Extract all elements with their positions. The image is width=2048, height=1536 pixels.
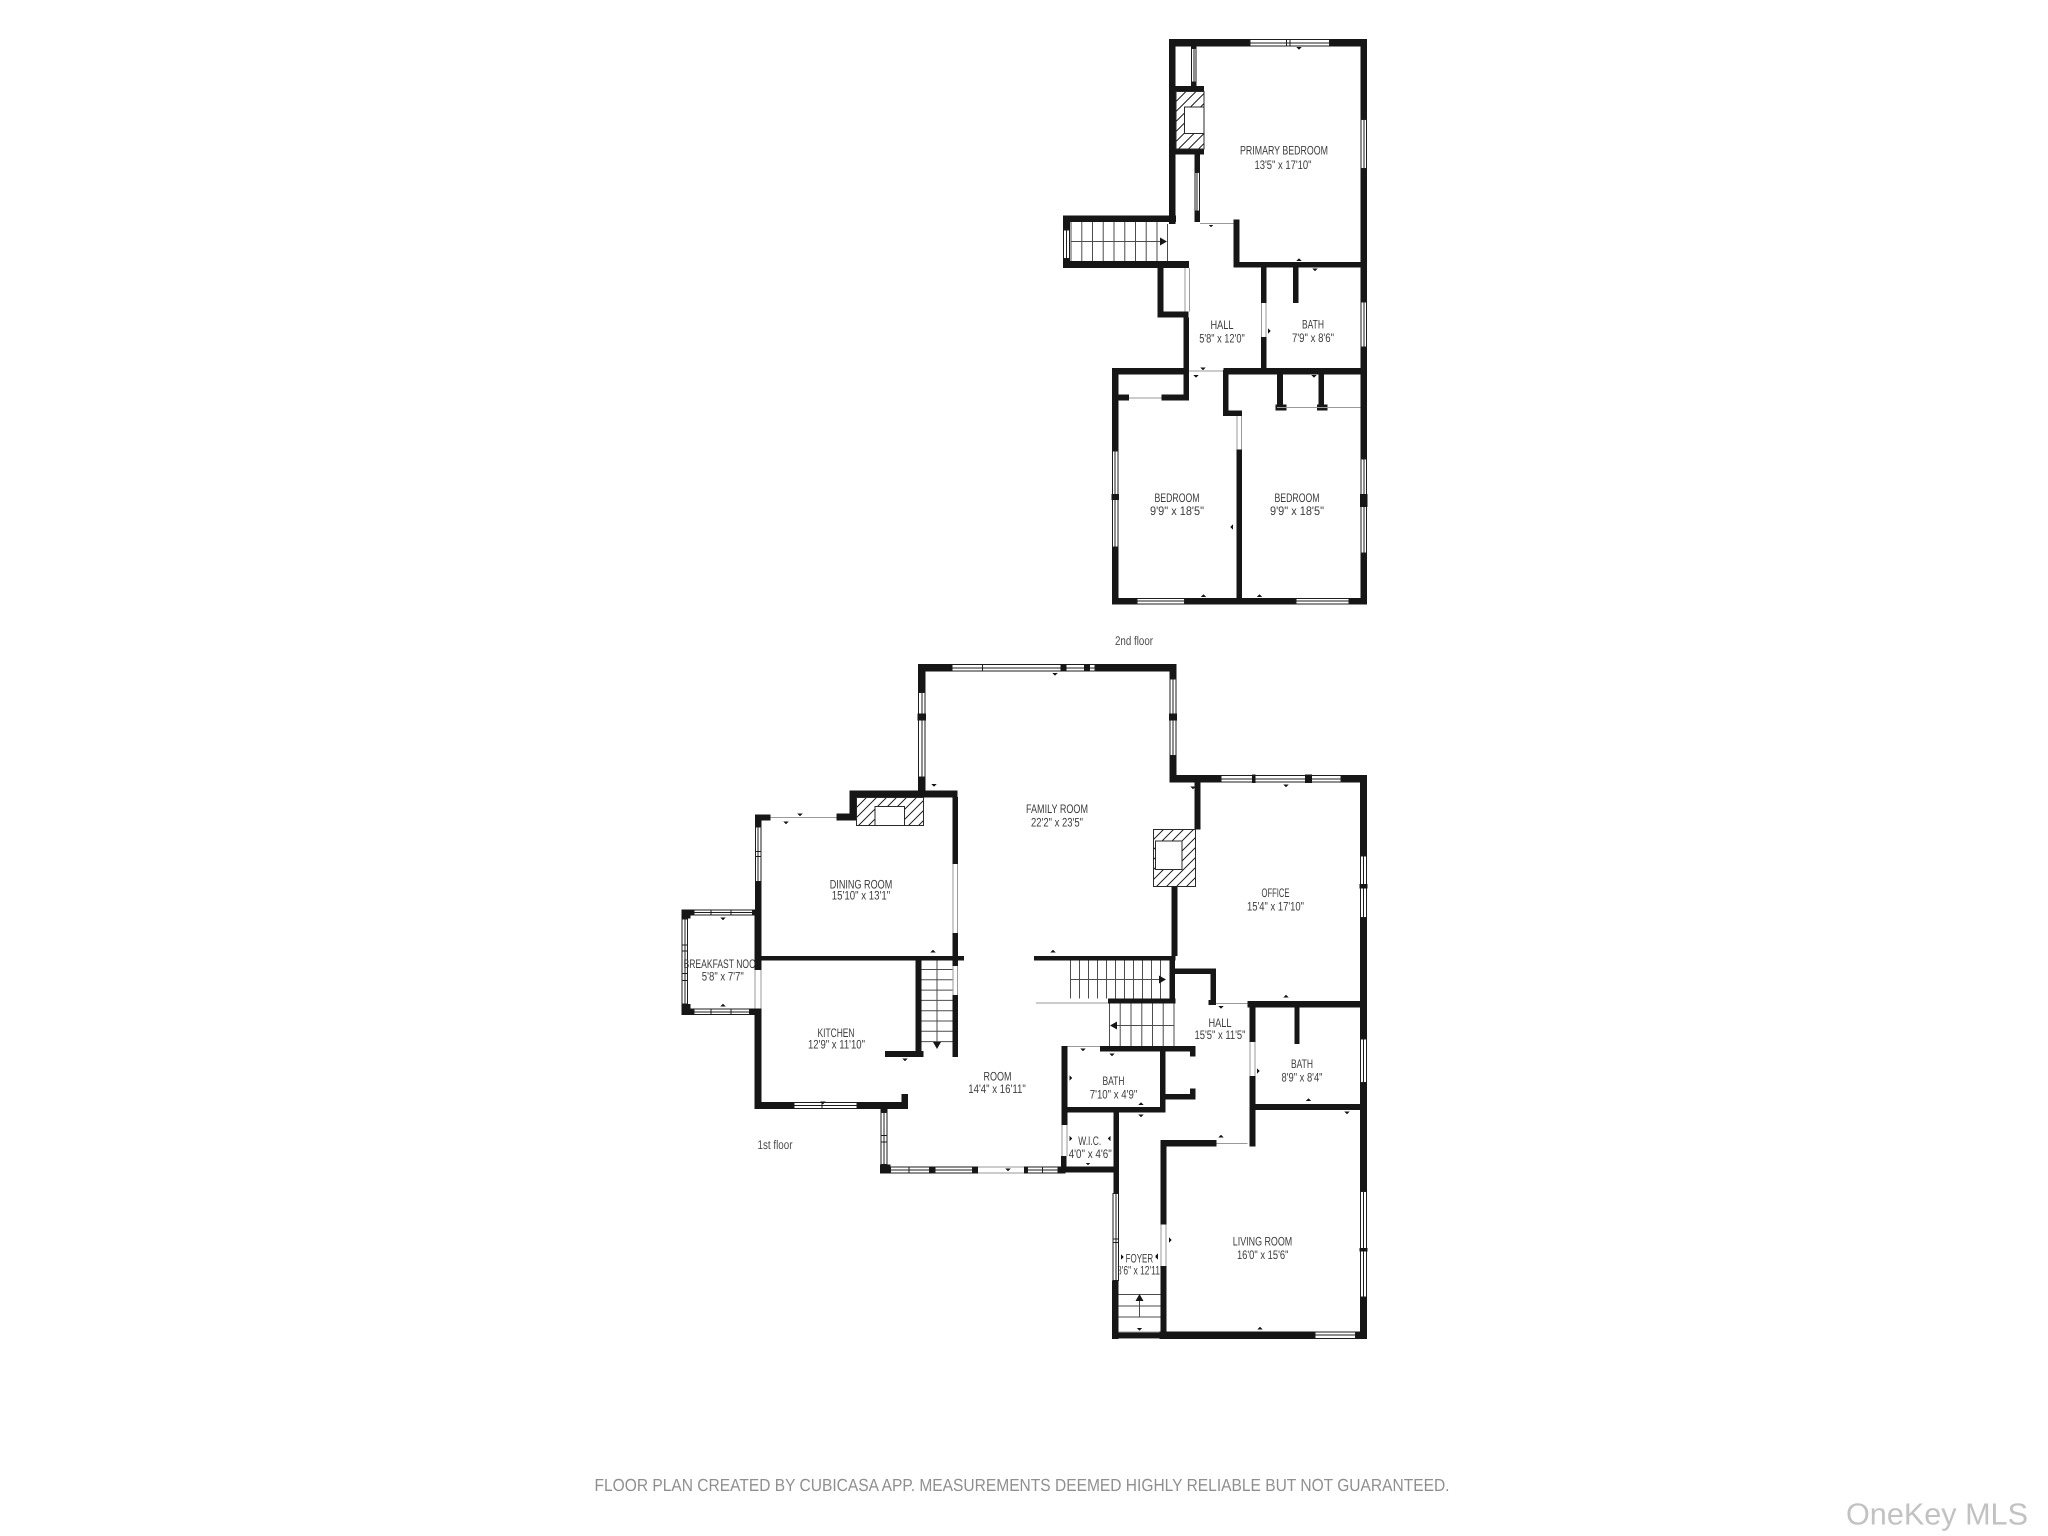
svg-text:1st floor: 1st floor [758, 1138, 793, 1152]
svg-text:5'8" x 7'7": 5'8" x 7'7" [702, 969, 744, 983]
svg-text:FLOOR PLAN CREATED BY CUBICASA: FLOOR PLAN CREATED BY CUBICASA APP. MEAS… [595, 1475, 1450, 1495]
svg-text:5'8" x 12'0": 5'8" x 12'0" [1199, 332, 1245, 346]
svg-text:OFFICE: OFFICE [1262, 886, 1290, 900]
svg-text:2nd floor: 2nd floor [1115, 634, 1153, 648]
svg-text:8'9" x 8'4": 8'9" x 8'4" [1282, 1071, 1323, 1085]
svg-text:9'9" x 18'5": 9'9" x 18'5" [1270, 504, 1324, 518]
svg-text:BEDROOM: BEDROOM [1275, 491, 1320, 505]
svg-text:15'10" x 13'1": 15'10" x 13'1" [832, 889, 891, 903]
svg-text:16'0" x 15'6": 16'0" x 15'6" [1237, 1248, 1289, 1262]
svg-text:14'4" x 16'11": 14'4" x 16'11" [968, 1082, 1026, 1096]
svg-text:LIVING ROOM: LIVING ROOM [1233, 1235, 1293, 1249]
svg-text:W.I.C.: W.I.C. [1078, 1134, 1101, 1148]
svg-text:13'5" x 17'10": 13'5" x 17'10" [1255, 158, 1312, 172]
svg-text:22'2" x 23'5": 22'2" x 23'5" [1031, 816, 1083, 830]
svg-text:12'9" x 11'10": 12'9" x 11'10" [808, 1038, 865, 1052]
svg-text:4'0" x 4'6": 4'0" x 4'6" [1069, 1147, 1112, 1161]
svg-text:HALL: HALL [1211, 318, 1234, 332]
svg-text:BATH: BATH [1291, 1057, 1313, 1071]
svg-text:3'6" x 12'11": 3'6" x 12'11" [1117, 1264, 1163, 1278]
svg-text:FAMILY ROOM: FAMILY ROOM [1026, 802, 1088, 816]
svg-text:BATH: BATH [1302, 318, 1324, 332]
svg-text:7'9" x 8'6": 7'9" x 8'6" [1292, 331, 1334, 345]
svg-text:15'5" x 11'5": 15'5" x 11'5" [1195, 1028, 1246, 1042]
svg-text:BATH: BATH [1103, 1074, 1125, 1088]
svg-text:9'9" x 18'5": 9'9" x 18'5" [1150, 504, 1204, 518]
svg-text:7'10" x 4'9": 7'10" x 4'9" [1090, 1088, 1138, 1102]
svg-text:15'4" x 17'10": 15'4" x 17'10" [1247, 900, 1304, 914]
svg-text:PRIMARY BEDROOM: PRIMARY BEDROOM [1240, 144, 1328, 158]
svg-text:OneKey MLS: OneKey MLS [1846, 1498, 2028, 1532]
svg-text:BEDROOM: BEDROOM [1155, 491, 1200, 505]
